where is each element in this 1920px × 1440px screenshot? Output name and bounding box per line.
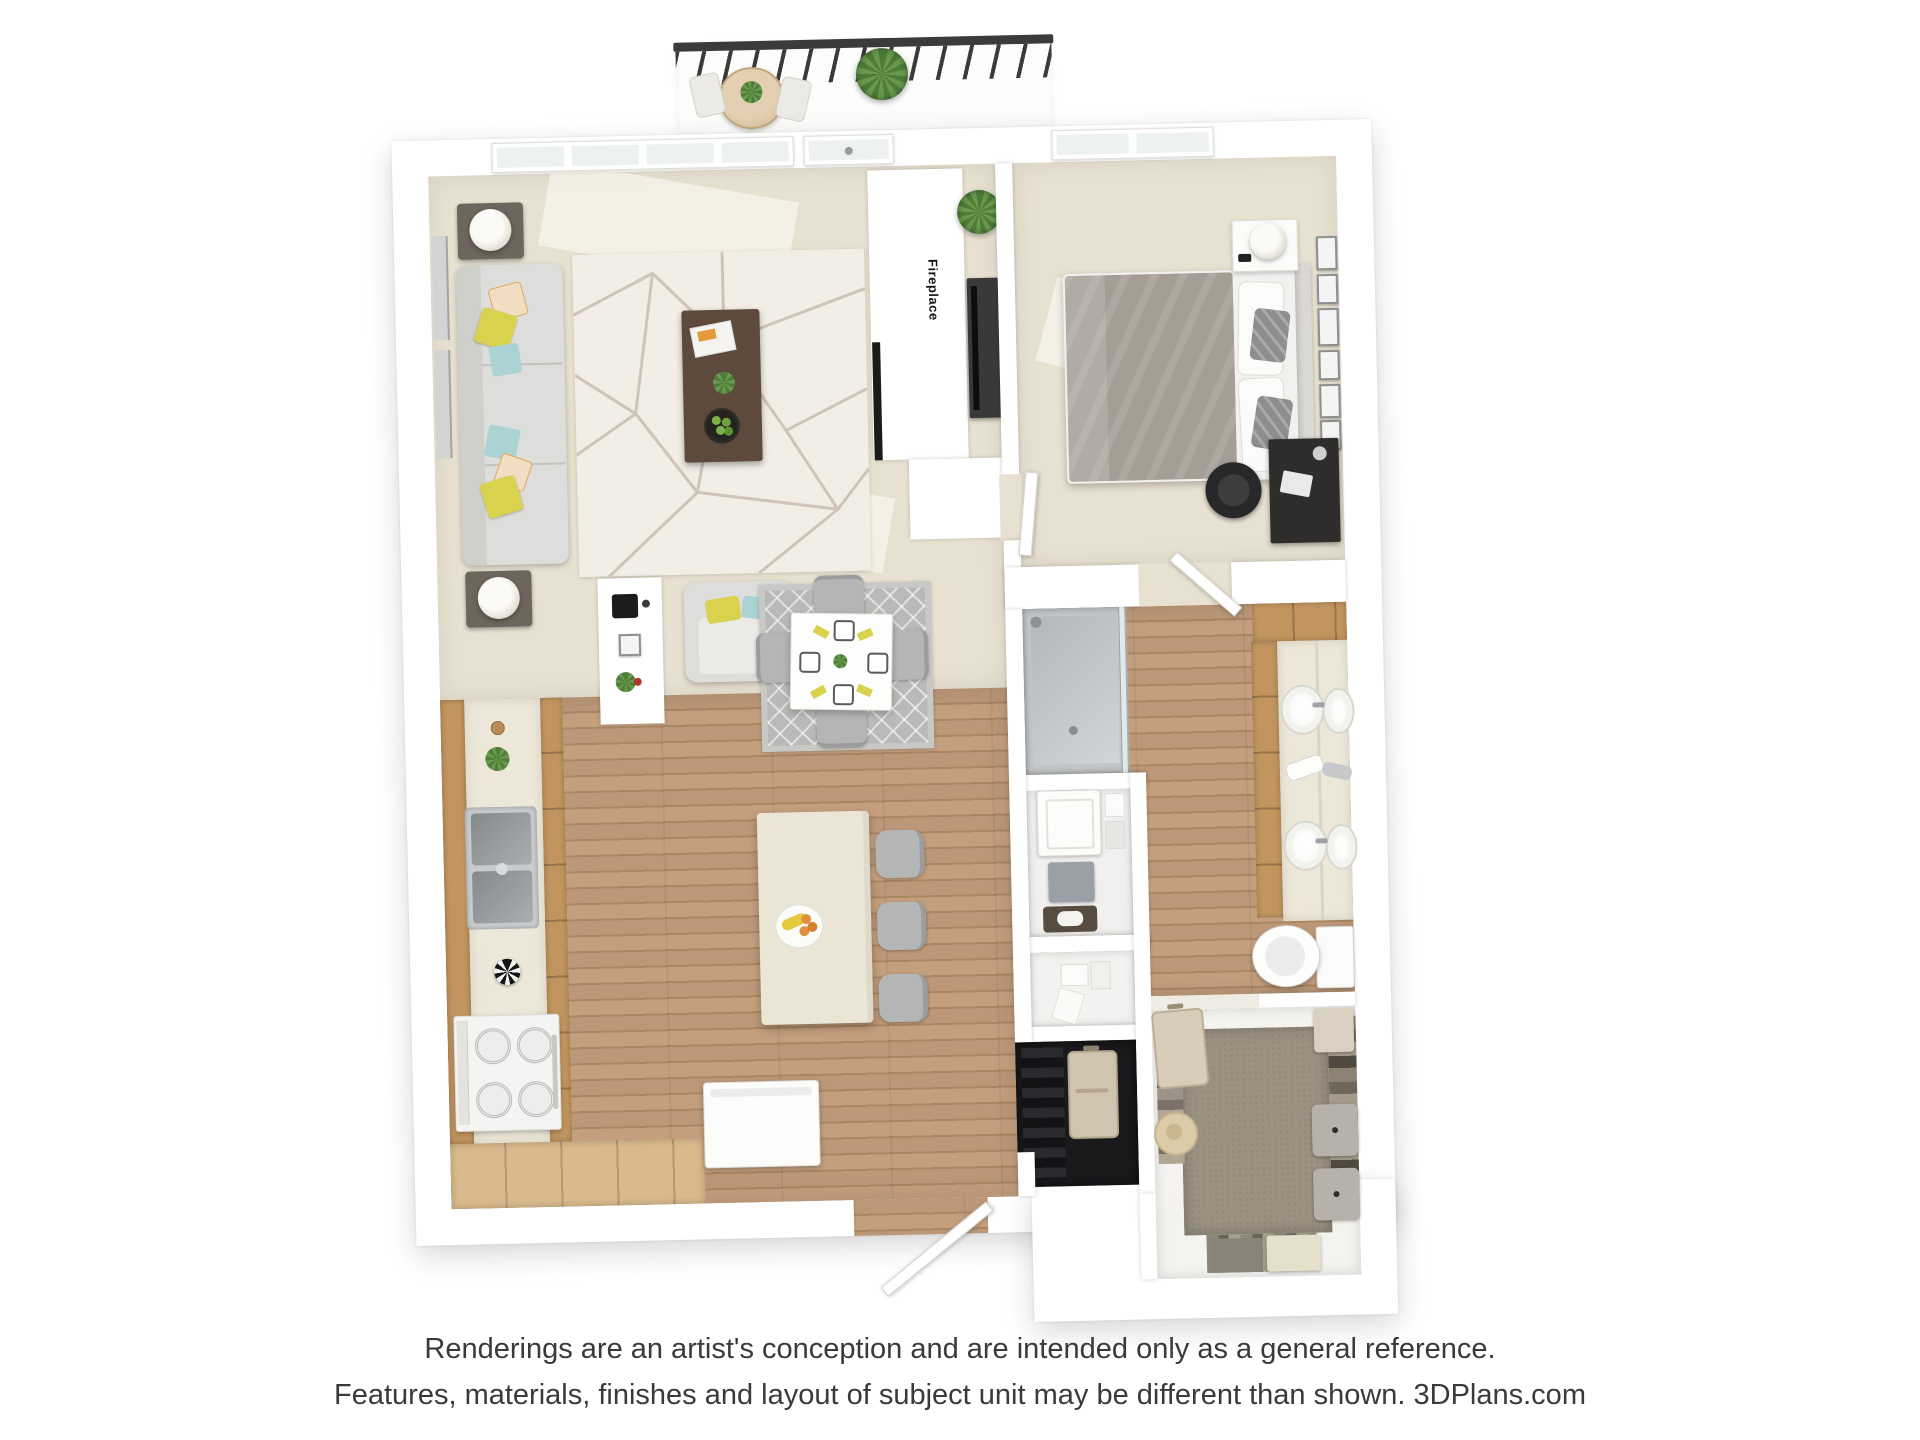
tv-screen [971, 286, 980, 410]
kitchen-bottom-counter [450, 1138, 705, 1209]
wall-art [1317, 308, 1339, 346]
linen-box [1090, 961, 1111, 989]
disclaimer-line1: Renderings are an artist's conception an… [0, 1326, 1920, 1372]
walkin-left-wall [1139, 1193, 1157, 1279]
window-pane [720, 140, 789, 164]
floor-plan-rendering: Fireplace [391, 119, 1398, 1351]
folded-towel-gray [1321, 761, 1353, 781]
kitchen-island [757, 811, 874, 1025]
shower-floor [1030, 615, 1119, 765]
bar-stool [877, 901, 927, 950]
suitcase-strap [1076, 1088, 1108, 1093]
window-pane [496, 145, 565, 169]
washer [1036, 789, 1101, 856]
laptop [1280, 470, 1314, 497]
bedroom-tv-console [967, 278, 1002, 419]
balcony-door [803, 134, 894, 166]
suitcase-handle [1167, 1003, 1183, 1009]
sink-basin [471, 812, 532, 865]
linen-box [1060, 964, 1088, 987]
suitcase [1067, 1050, 1119, 1139]
accent-pillow [1249, 307, 1291, 363]
sink-basin [472, 870, 533, 923]
dishwasher [703, 1080, 821, 1169]
bar-stool [875, 829, 925, 878]
small-art [619, 634, 641, 656]
storage-bin [1313, 1168, 1360, 1221]
tv-panel [434, 350, 452, 458]
kitchen-pantry [597, 577, 664, 724]
throw-pillow-teal [488, 343, 522, 377]
laundry-basket [1043, 905, 1098, 932]
burner [518, 1081, 555, 1118]
wall-art [1317, 274, 1339, 304]
laundry-closet [1026, 789, 1133, 937]
folded-sweater [1313, 1008, 1354, 1053]
towel-roll [1057, 911, 1083, 927]
kitchen-bath-wall [1017, 1152, 1035, 1196]
coffee-table [681, 309, 762, 463]
kitchen-sink [465, 806, 540, 930]
fireplace-label: Fireplace [925, 259, 941, 321]
hall-closet [909, 458, 1004, 540]
toilet-tank [1315, 926, 1354, 989]
folded-clothes-pile [1266, 1234, 1321, 1271]
suitcase-handle [1083, 1045, 1099, 1050]
centerpiece [833, 654, 847, 668]
disclaimer-line2: Features, materials, finishes and layout… [0, 1372, 1920, 1418]
place-plate [834, 620, 855, 641]
shelf-item [1105, 821, 1126, 849]
bed-duvet-fold [1065, 275, 1110, 482]
paper-sheet [1051, 987, 1085, 1025]
page: { "floorplan": { "labels": { "fireplace"… [0, 0, 1920, 1440]
window-pane [1055, 133, 1129, 157]
office-chair-seat [1217, 474, 1250, 507]
window-pane [1135, 131, 1209, 155]
place-plate [833, 684, 854, 705]
suitcase [1151, 1007, 1210, 1089]
napkin-yellow [857, 628, 874, 641]
walk-in-closet [1151, 1006, 1361, 1280]
disclaimer: Renderings are an artist's conception an… [0, 1326, 1920, 1418]
stove-control-panel [456, 1021, 469, 1125]
dishwasher-edge [710, 1087, 812, 1097]
espresso-cups [642, 600, 650, 608]
napkin-yellow [813, 625, 830, 639]
stove [453, 1014, 562, 1132]
place-plate [867, 653, 888, 674]
wall-art [1319, 384, 1341, 418]
storage-bin [1311, 1104, 1358, 1157]
bedroom-bathroom-wall [1004, 564, 1139, 609]
burner [475, 1028, 512, 1065]
burner [476, 1082, 513, 1119]
wall-art [1316, 236, 1338, 270]
storage-box [1048, 862, 1095, 903]
toilet-seat [1265, 936, 1306, 977]
table-plant [713, 372, 735, 394]
bedroom-door-threshold [999, 474, 1022, 540]
phone [1238, 254, 1251, 262]
wall-art [1318, 350, 1340, 380]
balcony-plant [855, 48, 908, 101]
shelf-item [1104, 793, 1125, 817]
bin-latch [1332, 1127, 1338, 1133]
linen-closet [1030, 951, 1136, 1027]
burner [517, 1027, 554, 1064]
coffee-maker [612, 594, 639, 619]
desk-lamp [1313, 446, 1327, 460]
shower [1022, 607, 1130, 775]
red-flower [634, 678, 642, 686]
window-pane [646, 142, 715, 166]
mirror-seam [1315, 640, 1324, 920]
fireplace-opening [872, 342, 883, 460]
hat-crown [1166, 1124, 1182, 1140]
fireplace-column: Fireplace [867, 168, 969, 460]
window-pane [571, 144, 640, 168]
place-plate [799, 652, 820, 673]
napkin-yellow [810, 685, 827, 699]
balcony [677, 36, 1051, 134]
faucet [1315, 838, 1327, 843]
faucet [1312, 702, 1324, 707]
oven-handle [552, 1035, 559, 1109]
bedroom-window [1051, 127, 1214, 161]
washer-lid [1046, 799, 1095, 850]
dining-table [790, 613, 893, 711]
napkin-yellow [856, 684, 873, 697]
folded-clothes-pile [1211, 1238, 1264, 1273]
desk [1268, 438, 1340, 544]
tv-panel [432, 236, 450, 340]
fruit-bowl [704, 407, 741, 444]
vanity-counter [1277, 640, 1353, 922]
bar-stool [878, 973, 928, 1022]
bathroom-upper-cabinet [1252, 602, 1347, 642]
bin-latch [1333, 1191, 1339, 1197]
shower-glass [1118, 607, 1128, 773]
bedroom-bathroom-wall [1231, 560, 1346, 605]
